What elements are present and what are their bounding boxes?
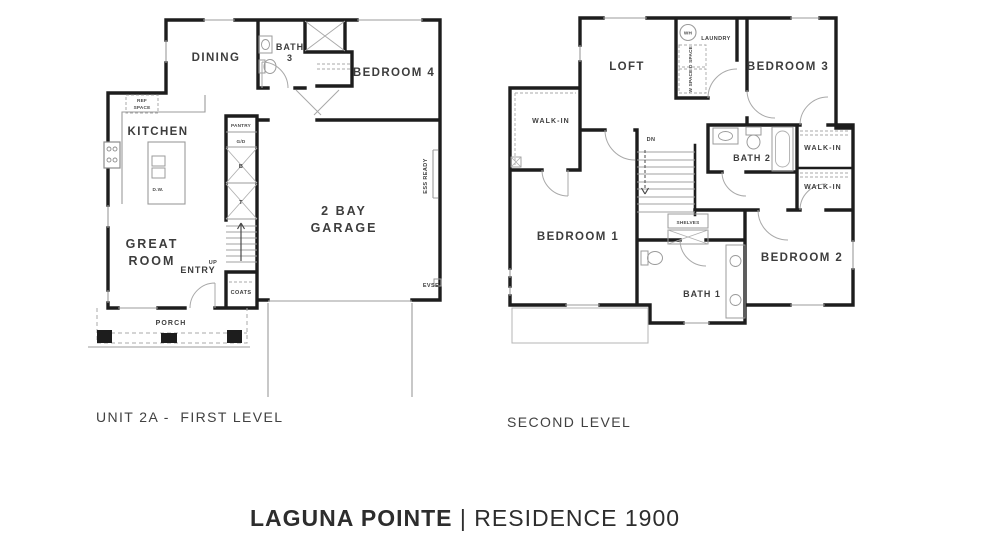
- room-label-bath1: BATH 1: [683, 289, 721, 299]
- room-label-bedroom4: BEDROOM 4: [353, 67, 435, 79]
- room-label-garage-1: 2 BAY: [321, 204, 367, 218]
- label-cabinet-t: T: [239, 200, 243, 206]
- kitchen-island: [148, 142, 185, 204]
- pantry-stairs-column: [226, 132, 257, 282]
- label-cabinet-b: B: [239, 164, 243, 170]
- label-walk-in-upper: WALK-IN: [804, 145, 842, 152]
- bath1-sink: [730, 256, 741, 267]
- island-sink-2: [152, 168, 165, 178]
- room-label-garage-2: GARAGE: [311, 221, 378, 235]
- room-label-bath3: BATH: [276, 42, 304, 52]
- label-pantry: PANTRY: [231, 123, 252, 128]
- residence-name: RESIDENCE 1900: [474, 505, 680, 531]
- porch-column: [161, 333, 177, 343]
- room-label-loft: LOFT: [609, 61, 645, 73]
- counter-lines: [122, 95, 205, 204]
- stairs-down: [637, 150, 695, 212]
- up-arrow: [238, 223, 245, 261]
- room-label-great-2: ROOM: [129, 254, 176, 268]
- label-washer-space: W SPACE: [688, 70, 693, 93]
- first-level-plan: DINING BATH 3 BEDROOM 4 KITCHEN REF SPAC…: [88, 20, 441, 397]
- label-ref-space-2: SPACE: [134, 105, 151, 110]
- bath1-sink-2: [730, 295, 741, 306]
- bath2-sink: [719, 132, 733, 141]
- title-divider: |: [453, 505, 475, 531]
- bath2-toilet-tank: [746, 127, 761, 135]
- label-porch: PORCH: [156, 320, 187, 327]
- label-entry: ENTRY: [180, 265, 215, 275]
- second-level-plan: LOFT WH LAUNDRY D SPACE W SPACE BEDROOM …: [510, 18, 853, 343]
- room-label-dining: DINING: [192, 52, 241, 64]
- label-coats: COATS: [231, 290, 252, 296]
- room-label-bath3-number: 3: [287, 53, 293, 63]
- closet-shelf-dashed: [317, 64, 352, 69]
- label-gd: G/D: [237, 139, 246, 144]
- toilet-bowl: [264, 60, 276, 74]
- bath3-sink: [262, 40, 270, 50]
- label-evse: EVSE: [423, 283, 439, 289]
- closet-rod-dashes: [515, 93, 850, 177]
- community-name: LAGUNA POINTE: [250, 505, 453, 531]
- label-dishwasher: D.W.: [153, 187, 164, 192]
- second-level-partitions: [695, 145, 853, 215]
- floorplan-drawing: DINING BATH 3 BEDROOM 4 KITCHEN REF SPAC…: [0, 0, 996, 560]
- island-sink: [152, 156, 165, 166]
- room-label-bedroom3: BEDROOM 3: [747, 61, 829, 73]
- label-walk-in-left: WALK-IN: [532, 118, 570, 125]
- label-ess-ready: ESS READY: [423, 158, 429, 193]
- first-level-labels: DINING BATH 3 BEDROOM 4 KITCHEN REF SPAC…: [126, 42, 440, 327]
- label-walk-in-lower: WALK-IN: [804, 184, 842, 191]
- marker-x: [511, 157, 521, 167]
- porch: [88, 308, 250, 347]
- porch-column: [227, 330, 242, 343]
- porch-column: [97, 330, 112, 343]
- bath2-vanity: [713, 128, 738, 144]
- floorplan-sheet: DINING BATH 3 BEDROOM 4 KITCHEN REF SPAC…: [0, 0, 996, 560]
- shower-x: [305, 21, 345, 51]
- sheet-title: LAGUNA POINTE | RESIDENCE 1900: [0, 505, 930, 532]
- room-label-great-1: GREAT: [126, 237, 179, 251]
- second-level-caption: SECOND LEVEL: [507, 414, 631, 430]
- bath1-toilet-tank: [641, 251, 648, 265]
- roof-outline: [512, 308, 648, 343]
- label-dryer-space: D SPACE: [688, 46, 693, 68]
- label-ref-space-1: REF: [137, 98, 147, 103]
- stair-treads-second: [637, 152, 695, 212]
- label-water-heater: WH: [684, 31, 693, 36]
- bath1-fixtures: [641, 245, 745, 318]
- bath1-toilet-bowl: [648, 252, 663, 265]
- linen-x: [668, 230, 708, 244]
- label-shelves: SHELVES: [677, 220, 700, 225]
- bath2-fixtures: [713, 127, 793, 171]
- label-dn: DN: [647, 137, 656, 143]
- corner-marker: [511, 157, 521, 167]
- label-laundry: LAUNDRY: [701, 36, 730, 42]
- bath2-toilet-bowl: [747, 135, 760, 149]
- bath3-vanity: [259, 36, 272, 53]
- room-label-bath2: BATH 2: [733, 153, 771, 163]
- room-label-bedroom2: BEDROOM 2: [761, 252, 843, 264]
- first-level-caption: UNIT 2A - FIRST LEVEL: [96, 409, 283, 425]
- room-label-bedroom1: BEDROOM 1: [537, 231, 619, 243]
- room-label-kitchen: KITCHEN: [128, 126, 189, 138]
- range: [104, 142, 120, 168]
- label-up: UP: [209, 260, 217, 266]
- bath2-tub-inner: [776, 131, 790, 167]
